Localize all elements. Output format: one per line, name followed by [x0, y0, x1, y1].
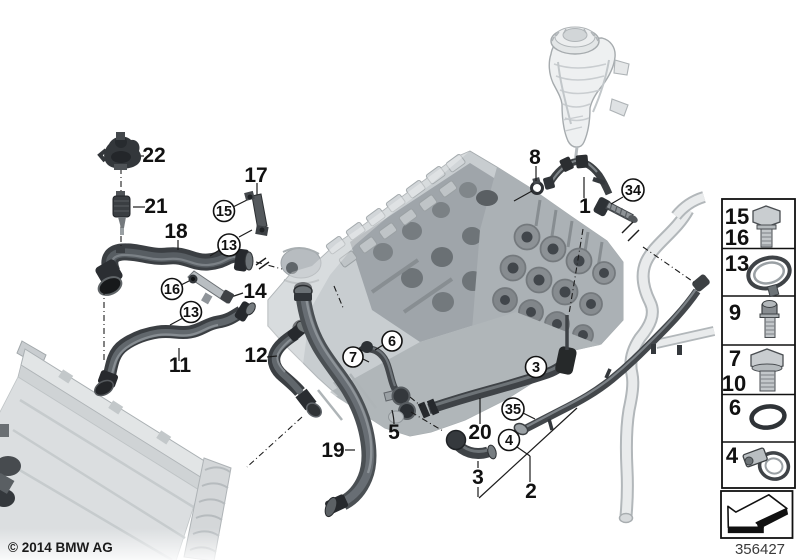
svg-text:14: 14 — [243, 280, 267, 303]
svg-text:1: 1 — [579, 195, 591, 218]
svg-text:4: 4 — [726, 443, 739, 468]
svg-text:6: 6 — [388, 334, 396, 350]
svg-text:20: 20 — [468, 421, 491, 444]
svg-text:13: 13 — [725, 251, 749, 276]
svg-text:5: 5 — [388, 421, 400, 444]
svg-text:2: 2 — [525, 480, 537, 503]
svg-text:35: 35 — [505, 402, 521, 418]
svg-text:17: 17 — [244, 164, 267, 187]
svg-text:13: 13 — [183, 305, 199, 321]
svg-text:10: 10 — [722, 371, 746, 396]
svg-text:3: 3 — [532, 360, 540, 376]
svg-text:19: 19 — [321, 439, 344, 462]
svg-text:22: 22 — [142, 144, 165, 167]
svg-text:16: 16 — [725, 225, 749, 250]
svg-text:4: 4 — [505, 433, 513, 449]
svg-text:15: 15 — [216, 204, 232, 220]
svg-text:34: 34 — [625, 183, 641, 199]
svg-text:16: 16 — [164, 282, 180, 298]
svg-text:13: 13 — [221, 238, 237, 254]
svg-text:12: 12 — [244, 344, 267, 367]
svg-text:6: 6 — [729, 395, 741, 420]
svg-text:18: 18 — [164, 220, 188, 243]
svg-text:3: 3 — [472, 466, 484, 489]
svg-text:7: 7 — [349, 350, 357, 366]
svg-text:9: 9 — [729, 300, 741, 325]
svg-text:356427: 356427 — [735, 541, 785, 558]
svg-text:7: 7 — [729, 346, 741, 371]
svg-text:© 2014 BMW AG: © 2014 BMW AG — [8, 540, 113, 555]
svg-text:8: 8 — [529, 146, 541, 169]
svg-text:11: 11 — [169, 354, 192, 377]
svg-text:21: 21 — [144, 195, 168, 218]
